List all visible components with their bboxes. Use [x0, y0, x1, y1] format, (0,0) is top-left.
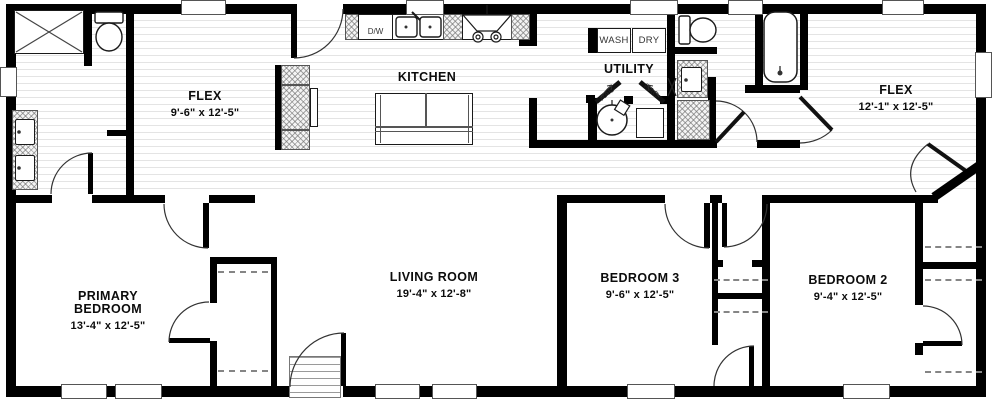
wall-bed2-closet	[915, 343, 923, 355]
wall-divider	[209, 195, 255, 203]
island-edge	[375, 131, 473, 132]
bench	[310, 88, 318, 127]
room-label-flex-left: FLEX	[188, 89, 222, 103]
window	[375, 384, 420, 399]
window	[61, 384, 107, 399]
wall-hall-bottom	[529, 140, 717, 148]
sink	[15, 155, 35, 181]
door-panel	[749, 346, 754, 387]
window	[432, 384, 477, 399]
door-panel	[291, 9, 297, 58]
island-divider	[425, 93, 427, 127]
linen-cabinet	[677, 100, 710, 140]
sink	[681, 67, 702, 92]
door-swing	[164, 204, 208, 248]
wall-segment	[752, 260, 770, 267]
wall-segment	[586, 95, 595, 103]
island-edge	[468, 95, 469, 143]
wall-living-bed3	[557, 195, 567, 387]
window	[627, 384, 675, 399]
room-dims-living-room: 19'-4" x 12'-8"	[397, 288, 472, 300]
kitchen-island	[375, 93, 473, 145]
wall-bed2-closet	[915, 203, 923, 305]
room-label-bedroom2: BEDROOM 2	[808, 273, 887, 287]
wall-divider	[8, 195, 52, 203]
window	[882, 0, 924, 15]
wall-segment	[923, 262, 984, 269]
room-dims-bedroom3: 9'-6" x 12'-5"	[606, 289, 675, 301]
room-label-flex-right: FLEX	[879, 83, 913, 97]
closet-rod	[218, 370, 268, 372]
door-panel	[704, 203, 710, 248]
window	[406, 0, 444, 15]
closet-rod	[714, 279, 768, 281]
door-swing	[169, 302, 209, 342]
wall-exterior-top	[6, 4, 986, 14]
room-label-living-room: LIVING ROOM	[390, 270, 478, 284]
wall-primary-closet	[210, 264, 217, 303]
wall-divider	[565, 195, 665, 203]
wall-segment	[667, 12, 675, 148]
wall-segment	[107, 130, 126, 136]
door-panel	[88, 153, 93, 194]
wall-segment	[675, 47, 717, 54]
counter-hatch	[345, 14, 359, 40]
room-dims-primary-bedroom: 13'-4" x 12'-5"	[71, 320, 146, 332]
door-swing	[724, 204, 767, 247]
wall-segment	[588, 28, 597, 53]
counter-hatch	[443, 14, 463, 40]
sink	[15, 119, 35, 145]
wall-closet-corridor	[712, 203, 718, 345]
room-label-kitchen: KITCHEN	[398, 70, 456, 84]
window	[630, 0, 678, 15]
wall-primary-closet	[271, 264, 277, 387]
window	[0, 67, 17, 97]
dryer-label: DRY	[632, 28, 666, 53]
door-panel	[722, 203, 727, 247]
furniture-divider	[281, 129, 310, 131]
furniture	[281, 65, 310, 150]
door-panel	[203, 203, 209, 248]
range	[462, 14, 512, 40]
wall-segment	[126, 10, 134, 197]
room-label-utility: UTILITY	[604, 62, 654, 76]
furnace	[636, 108, 664, 138]
window	[115, 384, 162, 399]
closet-rod	[925, 371, 982, 373]
wall-divider	[92, 195, 165, 203]
wall-segment	[712, 293, 770, 299]
closet-rod	[925, 279, 982, 281]
door-panel	[169, 338, 210, 343]
window	[975, 52, 992, 98]
wall-segment	[745, 85, 800, 93]
wall-segment	[800, 10, 808, 90]
entry-steps	[289, 356, 341, 398]
door-swing	[665, 204, 709, 248]
wall-segment	[588, 98, 597, 140]
wall-hall-bottom	[757, 140, 800, 148]
shower	[14, 10, 84, 54]
wall-divider	[710, 195, 722, 203]
room-dims-flex-right: 12'-1" x 12'-5"	[859, 101, 934, 113]
door-swing	[923, 306, 962, 345]
counter-hatch	[511, 14, 530, 40]
door-opening	[297, 4, 343, 15]
door-panel	[923, 341, 962, 346]
window	[181, 0, 226, 15]
wall-segment	[624, 96, 633, 104]
island-edge	[375, 126, 473, 128]
room-dims-flex-left: 9'-6" x 12'-5"	[171, 107, 240, 119]
wall-segment	[529, 98, 537, 140]
island-edge	[380, 95, 381, 143]
dishwasher-label: D/W	[358, 27, 393, 36]
wall-segment	[755, 10, 763, 88]
wall-divider	[762, 195, 938, 203]
wall-primary-closet	[210, 257, 277, 264]
closet-rod	[218, 271, 268, 273]
floor-hatching	[16, 14, 976, 195]
closet-rod	[714, 311, 768, 313]
wall-segment	[712, 260, 723, 267]
window	[728, 0, 763, 15]
floor-plan: RAC RAC FLEX 9'-6" x 12'-5" KITCHEN UTIL…	[0, 0, 992, 400]
room-dims-bedroom2: 9'-4" x 12'-5"	[814, 291, 883, 303]
room-label-bedroom3: BEDROOM 3	[600, 271, 679, 285]
door-panel	[341, 333, 346, 387]
wall-segment	[84, 10, 92, 66]
washer-label: WASH	[597, 28, 631, 53]
furniture-divider	[281, 84, 310, 86]
closet-rod	[925, 246, 982, 248]
room-label-primary-bedroom: PRIMARY BEDROOM	[64, 290, 152, 317]
door-swing	[714, 346, 754, 386]
wall-primary-closet	[210, 341, 217, 387]
window	[843, 384, 890, 399]
